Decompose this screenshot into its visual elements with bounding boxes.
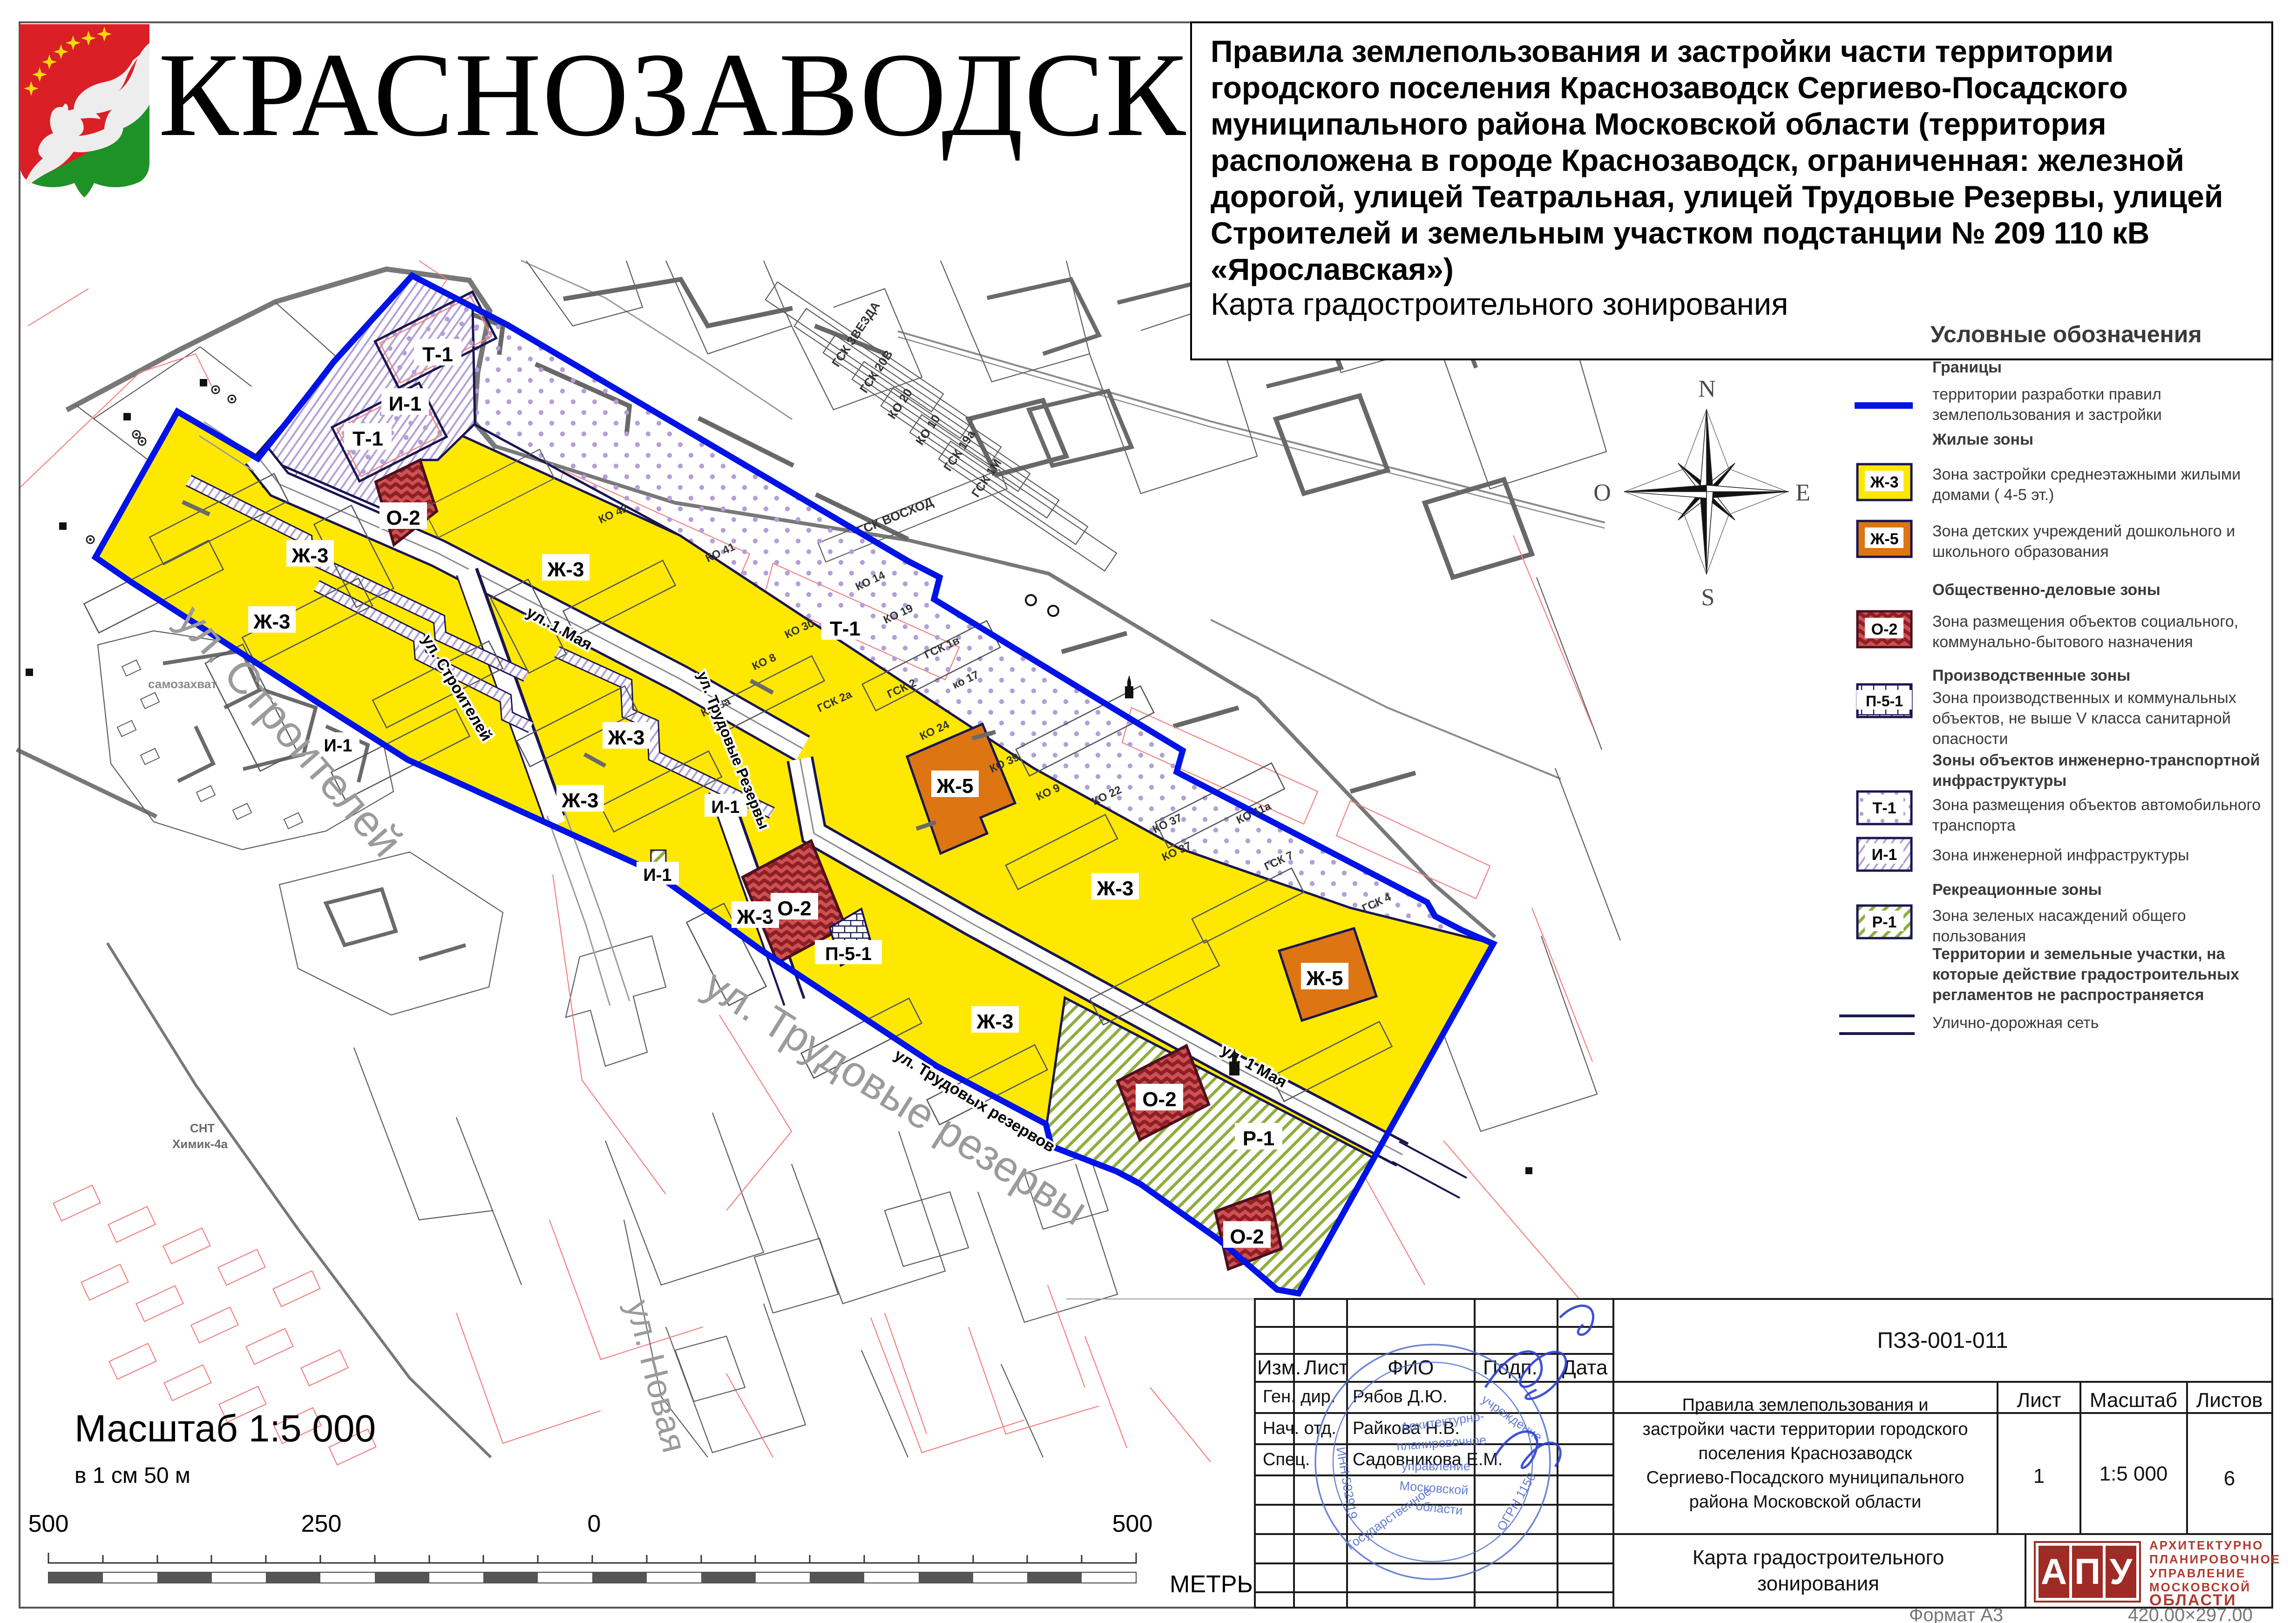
svg-text:Рекреационные зоны: Рекреационные зоны [1932,881,2102,899]
svg-text:управление: управление [1402,1459,1470,1473]
svg-text:Улично-дорожная сеть: Улично-дорожная сеть [1932,1014,2099,1032]
svg-text:регламентов не распространяетс: регламентов не распространяется [1932,986,2204,1004]
svg-text:района Московской области: района Московской области [1689,1492,1922,1512]
svg-text:Строителей и земельным участко: Строителей и земельным участком подстанц… [1211,216,2149,250]
svg-text:Ж-3: Ж-3 [291,544,329,567]
svg-text:Т-1: Т-1 [830,617,860,640]
svg-text:E: E [1795,480,1810,506]
svg-text:Правила землепользования и зас: Правила землепользования и застройки час… [1211,34,2113,68]
svg-text:Зона размещения объектов автом: Зона размещения объектов автомобильного [1932,796,2261,814]
svg-text:объектов, не выше V класса сан: объектов, не выше V класса санитарной [1932,710,2231,727]
svg-text:Т-1: Т-1 [352,427,383,450]
svg-text:Т-1: Т-1 [1873,799,1896,817]
svg-text:Лист: Лист [2017,1389,2061,1412]
svg-text:N: N [1698,376,1716,402]
svg-text:Р-1: Р-1 [1243,1127,1274,1150]
svg-text:СНТ: СНТ [190,1121,215,1135]
svg-text:городского поселения Краснозав: городского поселения Краснозаводск Серги… [1211,70,2128,105]
svg-text:Ж-5: Ж-5 [1870,530,1899,548]
svg-text:Химик-4а: Химик-4а [172,1137,228,1151]
svg-text:инфраструктуры: инфраструктуры [1932,772,2066,790]
svg-text:ПЗЗ-001-011: ПЗЗ-001-011 [1877,1328,2008,1353]
svg-text:Зона размещения объектов социа: Зона размещения объектов социального, [1932,613,2238,630]
svg-text:муниципального района Московск: муниципального района Московской области… [1211,107,2106,141]
svg-text:Границы: Границы [1932,358,2002,376]
svg-text:Ж-3: Ж-3 [562,789,599,812]
svg-text:Ж-3: Ж-3 [1870,473,1899,491]
svg-text:Формат А3: Формат А3 [1909,1605,2003,1623]
svg-text:Масштаб 1:5 000: Масштаб 1:5 000 [75,1407,376,1450]
svg-text:420.00×297.00: 420.00×297.00 [2128,1605,2253,1623]
svg-text:АРХИТЕКТУРНО: АРХИТЕКТУРНО [2149,1538,2263,1552]
svg-text:П-5-1: П-5-1 [1866,693,1903,710]
svg-text:O: O [1593,480,1611,506]
svg-text:Лист: Лист [1304,1356,1348,1379]
svg-text:И-1: И-1 [1872,846,1897,864]
svg-text:Общественно-деловые зоны: Общественно-деловые зоны [1932,581,2161,599]
svg-text:Ж-3: Ж-3 [547,558,584,581]
svg-text:О-2: О-2 [777,897,811,920]
svg-text:Зона зеленых насаждений общего: Зона зеленых насаждений общего [1932,907,2186,925]
svg-text:250: 250 [301,1510,342,1537]
svg-text:в 1 см 50 м: в 1 см 50 м [75,1463,190,1488]
svg-text:Ж-3: Ж-3 [608,726,645,749]
svg-text:ПЛАНИРОВОЧНОЕ: ПЛАНИРОВОЧНОЕ [2149,1552,2281,1566]
svg-text:И-1: И-1 [711,798,739,817]
svg-text:Сергиево-Посадского муниципаль: Сергиево-Посадского муниципального [1646,1468,1964,1488]
svg-text:коммунально-бытового назначени: коммунально-бытового назначения [1932,633,2193,651]
svg-text:1:5 000: 1:5 000 [2100,1462,2168,1485]
svg-text:О-2: О-2 [1230,1225,1264,1248]
svg-text:Карта градостроительного зонир: Карта градостроительного зонирования [1211,287,1788,322]
svg-text:О-2: О-2 [386,507,420,529]
svg-text:дорогой, улицей Театральная, у: дорогой, улицей Театральная, улицей Труд… [1211,179,2223,214]
svg-text:Р-1: Р-1 [1872,913,1897,931]
svg-text:Производственные зоны: Производственные зоны [1932,667,2130,684]
svg-text:опасности: опасности [1932,730,2008,748]
svg-text:Масштаб: Масштаб [2090,1389,2177,1412]
svg-text:Условные обозначения: Условные обозначения [1930,321,2202,347]
svg-text:самозахват: самозахват [148,677,217,691]
svg-text:Зоны объектов инженерно-трансп: Зоны объектов инженерно-транспортной [1932,751,2260,769]
svg-text:Рябов Д.Ю.: Рябов Д.Ю. [1353,1387,1448,1407]
svg-text:Ген. дир.: Ген. дир. [1263,1387,1335,1407]
svg-text:Ж-3: Ж-3 [253,610,291,633]
svg-text:Жилые зоны: Жилые зоны [1932,431,2033,448]
svg-text:землепользования и застройки: землепользования и застройки [1932,406,2162,424]
svg-text:Карта градостроительного: Карта градостроительного [1693,1546,1944,1569]
svg-text:Ж-3: Ж-3 [737,906,774,928]
svg-text:поселения Краснозаводск: поселения Краснозаводск [1699,1444,1912,1463]
svg-text:500: 500 [1112,1510,1153,1537]
svg-text:Спец.: Спец. [1263,1450,1310,1469]
svg-text:Ж-5: Ж-5 [1306,967,1343,990]
svg-text:застройки части территории гор: застройки части территории городского [1643,1420,1968,1439]
svg-text:МЕТРЫ: МЕТРЫ [1170,1571,1258,1598]
svg-text:Правила землепользования и: Правила землепользования и [1682,1395,1929,1415]
svg-text:которые действие градостроител: которые действие градостроительных [1932,966,2239,983]
svg-text:расположена в городе Краснозав: расположена в городе Краснозаводск, огра… [1211,143,2184,177]
svg-text:6: 6 [2224,1467,2235,1490]
svg-text:Зона застройки среднеэтажными: Зона застройки среднеэтажными жилыми [1932,466,2241,483]
svg-text:Зона производственных и коммун: Зона производственных и коммунальных [1932,689,2236,707]
svg-text:1: 1 [2033,1465,2045,1488]
svg-text:транспорта: транспорта [1932,817,2016,834]
svg-text:территории разработки правил: территории разработки правил [1932,385,2161,403]
svg-text:ФИО: ФИО [1388,1356,1434,1379]
svg-text:0: 0 [588,1510,601,1537]
svg-text:И-1: И-1 [389,392,422,415]
svg-text:«Ярославская»): «Ярославская») [1211,252,1454,286]
svg-text:школьного образования: школьного образования [1932,543,2109,561]
svg-text:УПРАВЛЕНИЕ: УПРАВЛЕНИЕ [2149,1566,2246,1580]
svg-text:Нач. отд.: Нач. отд. [1263,1419,1336,1438]
svg-text:П: П [2074,1551,2100,1592]
svg-text:Ж-3: Ж-3 [976,1010,1014,1033]
svg-text:А: А [2041,1551,2067,1592]
svg-text:О-2: О-2 [1871,621,1898,638]
svg-text:Ж-3: Ж-3 [1097,877,1134,900]
svg-text:Листов: Листов [2196,1389,2263,1412]
svg-text:домами ( 4-5 эт.): домами ( 4-5 эт.) [1932,486,2054,504]
svg-text:Дата: Дата [1562,1356,1608,1379]
svg-text:зонирования: зонирования [1757,1572,1879,1595]
svg-text:Зона детских учреждений дошкол: Зона детских учреждений дошкольного и [1932,522,2235,540]
svg-text:Территории и земельные участки: Территории и земельные участки, на [1932,945,2226,963]
svg-text:П-5-1: П-5-1 [825,944,872,964]
svg-text:500: 500 [28,1510,69,1537]
svg-text:У: У [2110,1551,2133,1592]
svg-text:И-1: И-1 [643,866,671,885]
svg-text:Ж-5: Ж-5 [936,775,974,798]
svg-text:Т-1: Т-1 [422,343,453,366]
svg-text:пользования: пользования [1932,927,2026,945]
svg-text:КРАСНОЗАВОДСК: КРАСНОЗАВОДСК [158,28,1186,161]
svg-text:Изм.: Изм. [1257,1356,1301,1379]
svg-text:Зона инженерной инфраструктуры: Зона инженерной инфраструктуры [1932,846,2189,864]
svg-text:О-2: О-2 [1142,1088,1176,1111]
svg-text:S: S [1701,584,1715,611]
